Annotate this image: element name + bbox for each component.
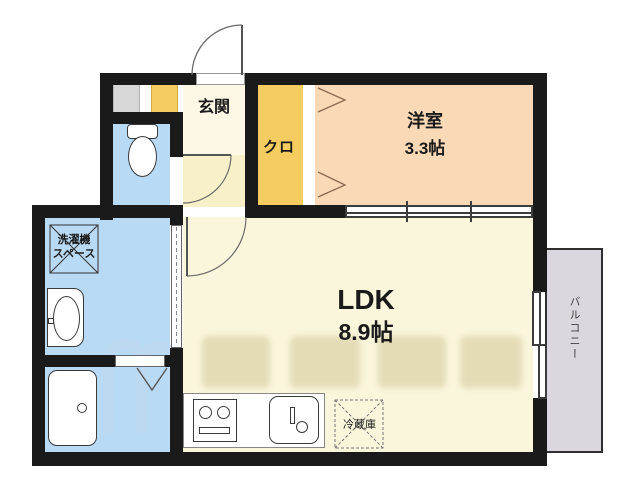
stove-icon <box>193 399 237 442</box>
label-washer-line2: スペース <box>53 248 96 260</box>
label-ldk: LDK 8.9帖 <box>306 285 426 347</box>
floorplan: 玄関 クロ 洋室 3.3帖 LDK 8.9帖 洗濯機 スペース 冷蔵庫 バルコニ… <box>0 0 640 480</box>
bath-folding-door-icon <box>137 368 167 390</box>
washbasin-faucet-icon <box>48 318 54 324</box>
ldk-door-icon <box>187 217 246 276</box>
stove-grill-icon <box>199 427 230 434</box>
bathtub-drain-icon <box>77 403 87 413</box>
label-closet: クロ <box>263 136 295 157</box>
label-genkan: 玄関 <box>198 93 230 117</box>
label-washer-space: 洗濯機 スペース <box>44 234 104 262</box>
sink-drain-icon <box>296 421 308 433</box>
closet-fold-icon <box>318 172 345 197</box>
entrance-door-icon <box>192 25 242 75</box>
label-fridge: 冷蔵庫 <box>343 416 376 432</box>
toilet-door-icon <box>183 155 231 203</box>
label-western-room: 洋室 3.3帖 <box>375 108 475 162</box>
washbasin-bowl-icon <box>53 296 80 341</box>
label-balcony: バルコニー <box>566 296 582 361</box>
label-washer-line1: 洗濯機 <box>58 234 91 246</box>
closet-fold-icon <box>318 88 345 112</box>
stove-burner-icon <box>199 406 212 419</box>
stove-burner-icon <box>217 406 230 419</box>
bathtub-icon <box>48 370 97 446</box>
label-western-size: 3.3帖 <box>405 139 446 158</box>
label-ldk-size: 8.9帖 <box>339 319 394 345</box>
label-western-name: 洋室 <box>407 111 443 131</box>
label-ldk-name: LDK <box>337 284 395 315</box>
toilet-bowl-icon <box>128 136 157 177</box>
sink-faucet-icon <box>290 407 295 424</box>
